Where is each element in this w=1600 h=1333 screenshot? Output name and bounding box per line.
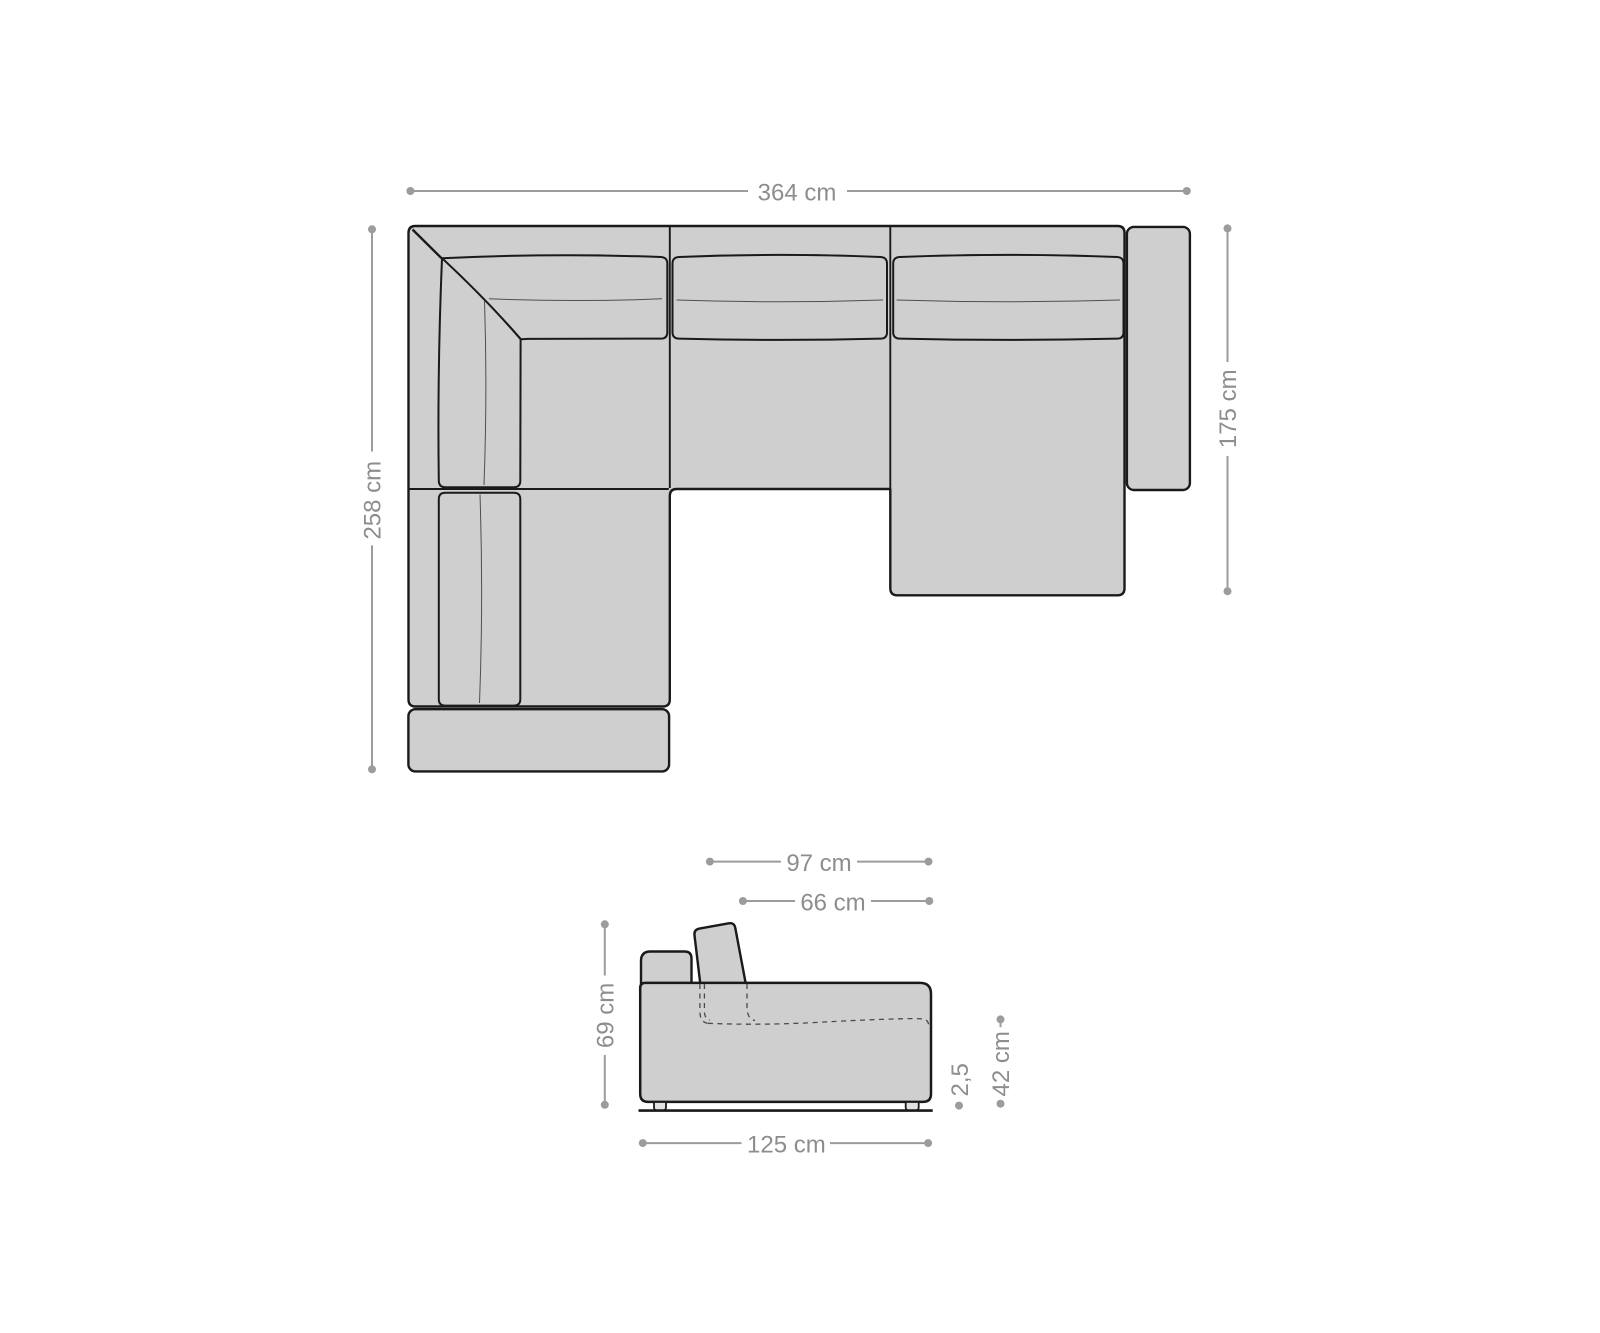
- svg-text:2,5: 2,5: [947, 1063, 974, 1096]
- svg-text:97 cm: 97 cm: [786, 850, 851, 877]
- svg-text:364 cm: 364 cm: [758, 180, 837, 207]
- svg-text:69 cm: 69 cm: [592, 983, 619, 1048]
- svg-text:42 cm: 42 cm: [988, 1031, 1015, 1096]
- svg-text:175 cm: 175 cm: [1215, 369, 1242, 448]
- svg-text:66 cm: 66 cm: [800, 890, 865, 917]
- svg-text:125 cm: 125 cm: [747, 1132, 826, 1159]
- svg-text:258 cm: 258 cm: [360, 461, 387, 540]
